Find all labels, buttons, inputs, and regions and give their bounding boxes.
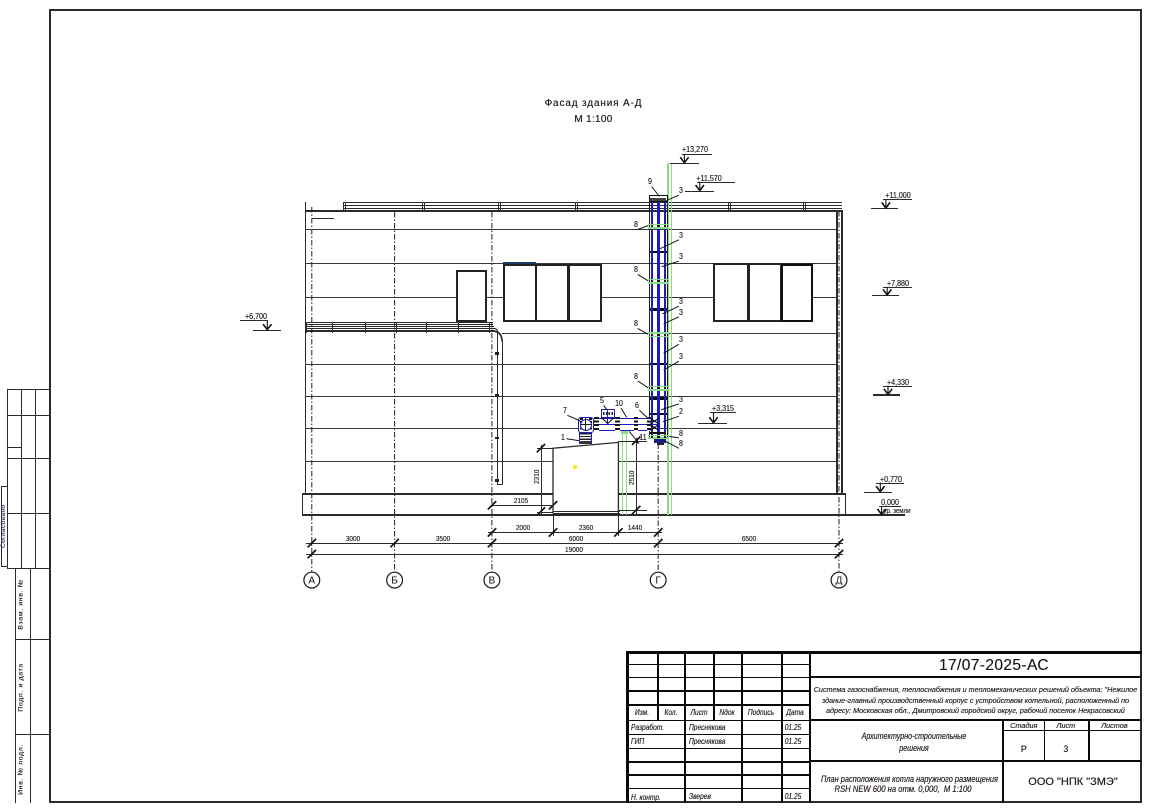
svg-text:А: А	[308, 576, 315, 587]
svg-text:Б: Б	[391, 576, 398, 587]
svg-text:Г: Г	[655, 576, 661, 587]
svg-text:В: В	[489, 576, 496, 587]
svg-text:Д: Д	[836, 576, 843, 587]
